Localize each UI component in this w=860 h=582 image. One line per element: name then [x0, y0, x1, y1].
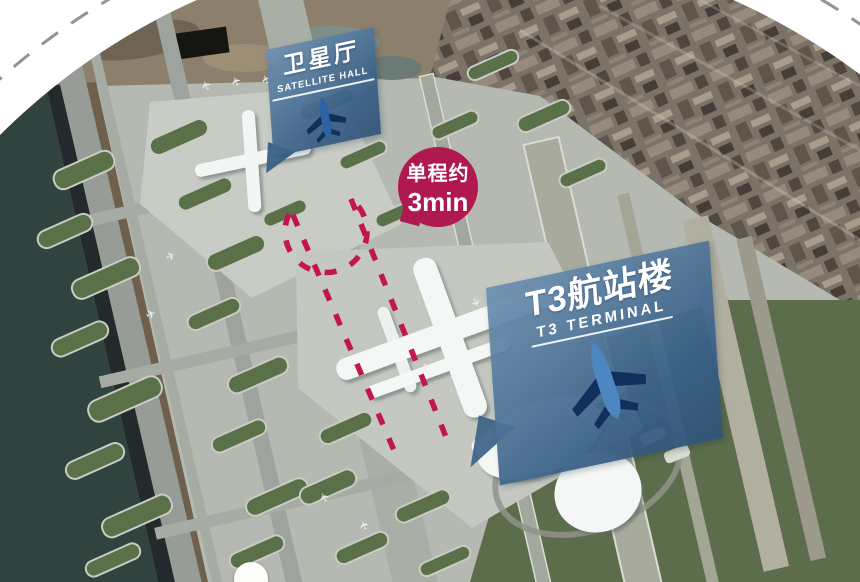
- airport-aerial-graphic: ✈ ✈ ✈ ✈ ✈ ✈ ✈ ✈ ✈ ✈ 卫星厅 SATELLITE HALL: [0, 0, 860, 582]
- travel-time-label: 单程约: [407, 157, 470, 186]
- travel-time-badge: 单程约 3min: [398, 147, 478, 227]
- travel-time-value: 3min: [408, 187, 469, 218]
- plane-icon: [300, 89, 351, 149]
- aerial-scene: ✈ ✈ ✈ ✈ ✈ ✈ ✈ ✈ ✈ ✈: [0, 0, 860, 582]
- aerial-photo: ✈ ✈ ✈ ✈ ✈ ✈ ✈ ✈ ✈ ✈: [0, 0, 860, 582]
- satellite-hall-banner: 卫星厅 SATELLITE HALL: [266, 27, 381, 157]
